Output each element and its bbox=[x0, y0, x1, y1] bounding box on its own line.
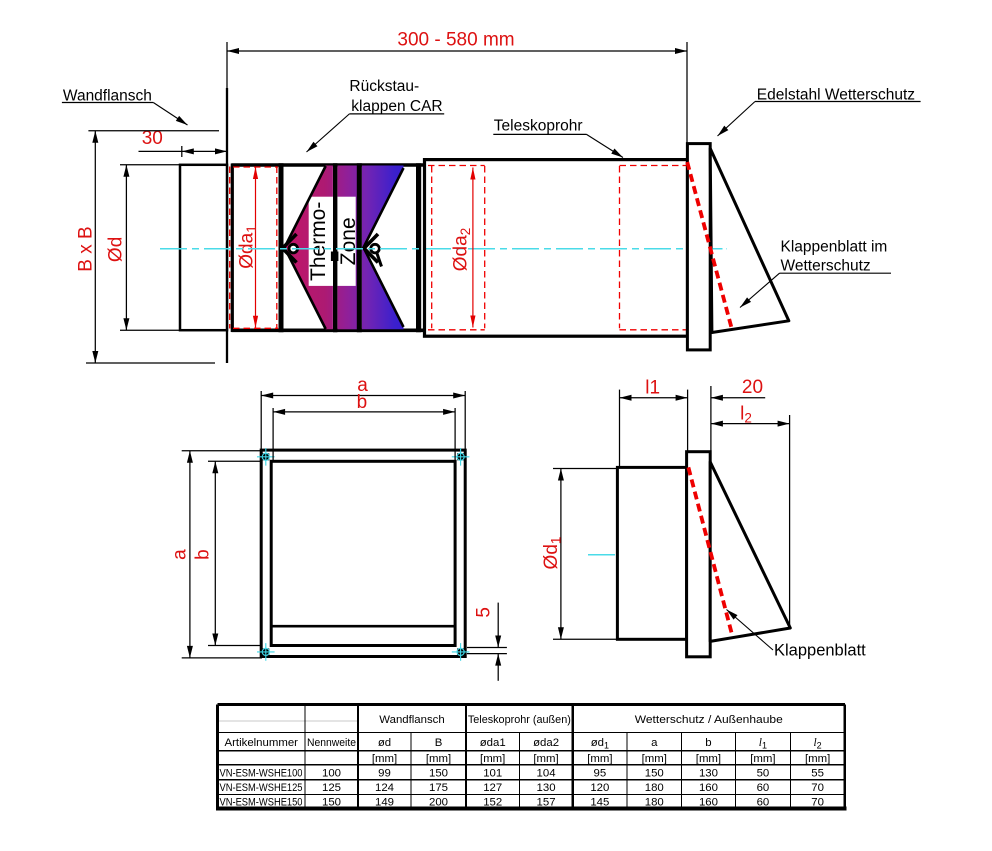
svg-text:[mm]: [mm] bbox=[587, 753, 612, 765]
svg-text:b: b bbox=[357, 392, 368, 413]
svg-text:[mm]: [mm] bbox=[426, 753, 451, 765]
svg-text:95: 95 bbox=[594, 767, 607, 779]
svg-text:a: a bbox=[169, 549, 190, 560]
svg-text:Wetterschutz / Außenhaube: Wetterschutz / Außenhaube bbox=[635, 714, 783, 726]
svg-text:Wetterschutz: Wetterschutz bbox=[781, 257, 871, 274]
svg-text:127: 127 bbox=[483, 782, 502, 794]
svg-text:VN-ESM-WSHE125: VN-ESM-WSHE125 bbox=[220, 782, 303, 794]
svg-text:300 - 580 mm: 300 - 580 mm bbox=[397, 30, 514, 51]
svg-text:Klappenblatt im: Klappenblatt im bbox=[781, 238, 888, 255]
svg-text:130: 130 bbox=[537, 782, 556, 794]
svg-text:101: 101 bbox=[483, 767, 502, 779]
svg-text:130: 130 bbox=[699, 767, 718, 779]
svg-text:Teleskoprohr: Teleskoprohr bbox=[494, 118, 583, 135]
svg-text:145: 145 bbox=[590, 797, 609, 809]
svg-text:180: 180 bbox=[645, 782, 664, 794]
svg-text:160: 160 bbox=[699, 797, 718, 809]
svg-text:55: 55 bbox=[811, 767, 824, 779]
svg-text:104: 104 bbox=[537, 767, 556, 779]
svg-text:[mm]: [mm] bbox=[805, 753, 830, 765]
svg-text:[mm]: [mm] bbox=[696, 753, 721, 765]
svg-text:124: 124 bbox=[375, 782, 394, 794]
svg-text:Ød: Ød bbox=[105, 237, 126, 262]
svg-text:175: 175 bbox=[429, 782, 448, 794]
svg-text:70: 70 bbox=[811, 782, 824, 794]
svg-text:Thermo-: Thermo- bbox=[307, 202, 330, 281]
svg-text:160: 160 bbox=[699, 782, 718, 794]
svg-text:a: a bbox=[651, 737, 658, 749]
svg-text:200: 200 bbox=[429, 797, 448, 809]
svg-text:50: 50 bbox=[757, 767, 770, 779]
svg-text:157: 157 bbox=[537, 797, 556, 809]
svg-text:øda2: øda2 bbox=[533, 737, 559, 749]
svg-text:ød: ød bbox=[378, 737, 391, 749]
svg-text:øda1: øda1 bbox=[480, 737, 506, 749]
svg-text:[mm]: [mm] bbox=[750, 753, 775, 765]
svg-text:b: b bbox=[193, 549, 214, 560]
svg-text:120: 120 bbox=[590, 782, 609, 794]
svg-text:180: 180 bbox=[645, 797, 664, 809]
svg-text:Rückstau-: Rückstau- bbox=[349, 78, 419, 95]
svg-text:150: 150 bbox=[322, 797, 341, 809]
svg-text:Zone: Zone bbox=[337, 217, 360, 265]
svg-text:VN-ESM-WSHE100: VN-ESM-WSHE100 bbox=[220, 767, 303, 779]
svg-text:[mm]: [mm] bbox=[533, 753, 558, 765]
svg-text:60: 60 bbox=[757, 782, 770, 794]
svg-text:149: 149 bbox=[375, 797, 394, 809]
svg-text:20: 20 bbox=[742, 377, 763, 398]
svg-text:VN-ESM-WSHE150: VN-ESM-WSHE150 bbox=[220, 797, 303, 809]
svg-text:99: 99 bbox=[378, 767, 391, 779]
svg-text:125: 125 bbox=[322, 782, 341, 794]
svg-text:B: B bbox=[435, 737, 443, 749]
svg-text:Nennweite: Nennweite bbox=[307, 737, 356, 749]
svg-text:Artikelnummer: Artikelnummer bbox=[225, 737, 299, 749]
svg-text:[mm]: [mm] bbox=[372, 753, 397, 765]
svg-text:klappen CAR: klappen CAR bbox=[351, 98, 442, 115]
svg-text:60: 60 bbox=[757, 797, 770, 809]
svg-text:Teleskoprohr (außen): Teleskoprohr (außen) bbox=[468, 714, 571, 726]
svg-text:B x B: B x B bbox=[76, 226, 97, 271]
svg-text:5: 5 bbox=[474, 607, 495, 618]
svg-text:150: 150 bbox=[429, 767, 448, 779]
svg-text:70: 70 bbox=[811, 797, 824, 809]
svg-text:l1: l1 bbox=[645, 378, 660, 399]
svg-text:Klappenblatt: Klappenblatt bbox=[774, 642, 866, 660]
svg-text:b: b bbox=[705, 737, 711, 749]
svg-text:Wandflansch: Wandflansch bbox=[379, 714, 444, 726]
svg-text:150: 150 bbox=[645, 767, 664, 779]
svg-text:100: 100 bbox=[322, 767, 341, 779]
svg-text:152: 152 bbox=[483, 797, 502, 809]
svg-text:[mm]: [mm] bbox=[480, 753, 505, 765]
svg-text:[mm]: [mm] bbox=[642, 753, 667, 765]
